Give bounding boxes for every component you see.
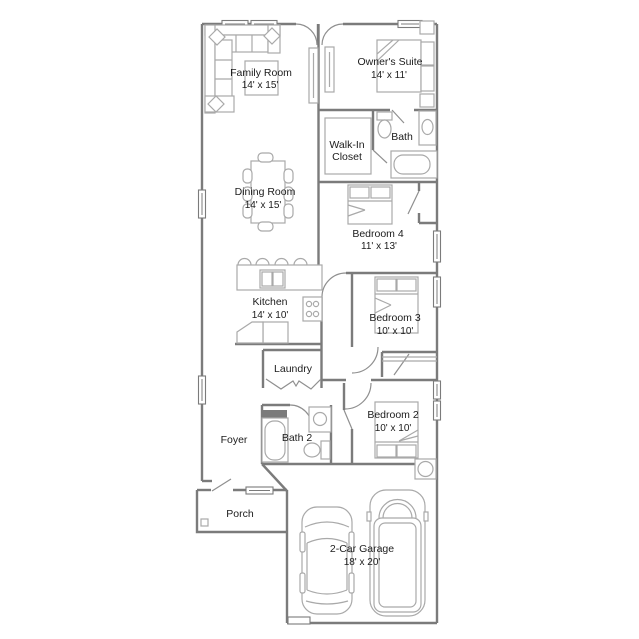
wheel: [300, 573, 305, 593]
chair: [243, 169, 252, 183]
garage-step: [288, 617, 310, 624]
room-dims-bedroom3: 10' x 10': [377, 326, 414, 337]
chair: [258, 222, 273, 231]
toilet-bowl: [304, 443, 320, 457]
room-label-walk-in-closet-1: Walk-In: [329, 139, 364, 151]
nightstand: [420, 21, 434, 34]
laundry-bifold-doors: [266, 379, 321, 389]
entry-door-leaf: [212, 479, 231, 491]
bar-stool: [275, 259, 288, 265]
tub-ledge: [263, 410, 287, 418]
pillow: [421, 42, 434, 65]
bedroom4-furniture: [348, 185, 392, 224]
bedroom2-closet-door-leaf: [344, 410, 352, 429]
chair: [258, 153, 273, 162]
room-dims-owners-suite: 14' x 11': [371, 70, 407, 81]
pillow: [377, 279, 396, 291]
room-dims-kitchen: 14' x 10': [252, 310, 289, 321]
room-label-laundry: Laundry: [274, 363, 313, 375]
bedroom4-closet-door-leaf: [408, 191, 419, 214]
floor-plan-drawing: Family Room 14' x 15' Owner's Suite 14' …: [0, 0, 639, 639]
room-label-kitchen: Kitchen: [252, 296, 287, 308]
pillow: [397, 279, 416, 291]
room-label-bath2: Bath 2: [282, 432, 313, 444]
room-label-foyer: Foyer: [221, 434, 248, 446]
pillow: [377, 445, 396, 457]
room-label-walk-in-closet-2: Closet: [332, 151, 362, 163]
room-dims-dining-room: 14' x 15': [245, 200, 282, 211]
bar-stool: [256, 259, 269, 265]
room-dims-garage: 18' x 20': [344, 557, 381, 568]
closet-door-leaf: [373, 150, 387, 163]
room-label-porch: Porch: [226, 508, 254, 520]
room-label-bedroom2: Bedroom 2: [367, 409, 419, 421]
pillow: [421, 66, 434, 91]
room-label-bath: Bath: [391, 131, 413, 143]
wheel: [300, 532, 305, 552]
corner-counter: [237, 322, 263, 343]
tub-basin: [394, 155, 430, 174]
sink-basin: [422, 120, 433, 135]
mirror: [367, 512, 371, 521]
mirror: [424, 512, 428, 521]
room-label-family-room: Family Room: [230, 67, 292, 79]
toilet-tank: [321, 441, 330, 459]
room-label-dining-room: Dining Room: [235, 186, 296, 198]
sink-basin: [314, 413, 327, 426]
floor-plan: Family Room 14' x 15' Owner's Suite 14' …: [0, 0, 639, 639]
toilet-tank: [377, 112, 392, 120]
nightstand: [420, 94, 434, 107]
room-label-bedroom3: Bedroom 3: [369, 312, 421, 324]
front-right-door-swing: [322, 24, 343, 45]
suite-hall-door-leaf: [392, 110, 404, 123]
pillow: [350, 187, 369, 198]
room-label-bedroom4: Bedroom 4: [352, 228, 404, 240]
bedroom3-door-swing: [352, 347, 378, 373]
stove: [303, 297, 322, 321]
bedroom4-door-swing: [322, 273, 346, 297]
pillow: [371, 187, 390, 198]
wheel: [349, 573, 354, 593]
closet-rod: [382, 357, 437, 361]
toilet-bowl: [378, 120, 391, 138]
front-left-door-swing: [296, 24, 317, 45]
bedroom2-door-swing: [345, 383, 371, 409]
room-dims-bedroom2: 10' x 10': [375, 423, 412, 434]
garage-contents: [300, 459, 436, 616]
room-label-owners-suite: Owner's Suite: [357, 56, 422, 68]
porch-post: [201, 519, 208, 526]
chair: [284, 169, 293, 183]
room-dims-family-room: 14' x 15': [242, 80, 279, 91]
base-cabinet: [263, 322, 288, 343]
bar-stool: [294, 259, 307, 265]
room-dims-bedroom4: 11' x 13': [361, 241, 397, 252]
room-label-garage: 2-Car Garage: [330, 543, 394, 555]
bar-stool: [238, 259, 251, 265]
pillow: [397, 445, 416, 457]
chair: [284, 204, 293, 218]
